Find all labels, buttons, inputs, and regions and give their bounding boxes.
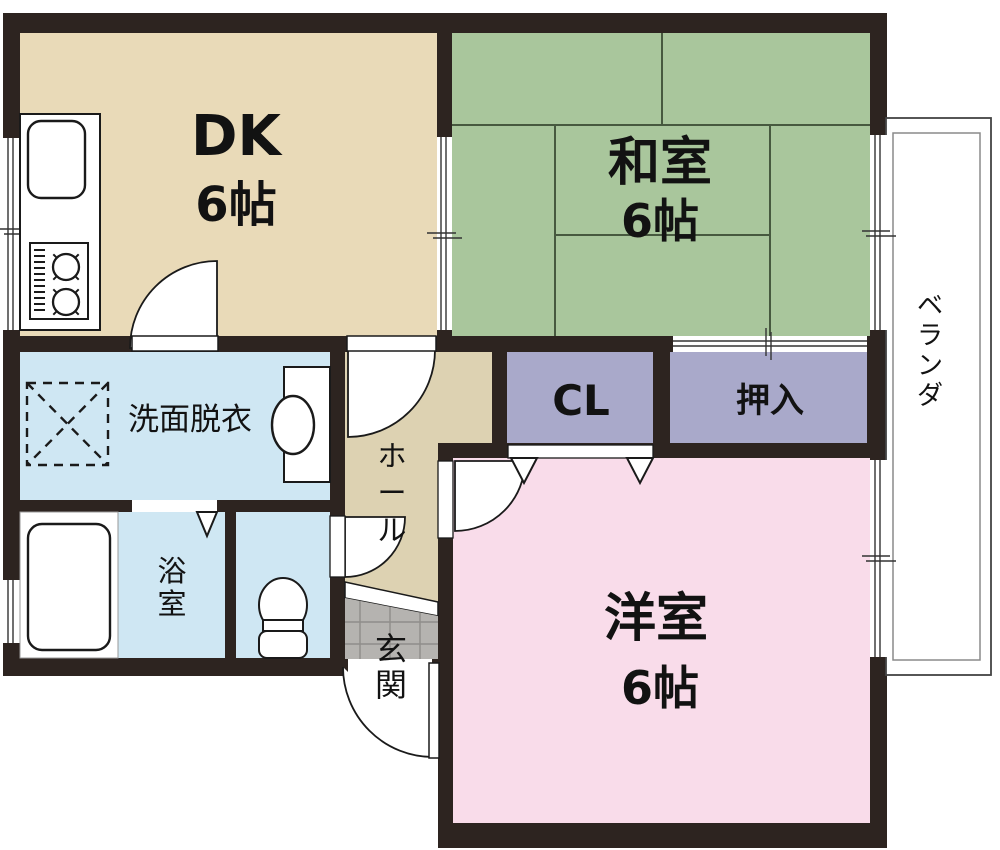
label-entrance: 玄関 [375,630,407,704]
label-veranda: ベランダ [917,291,943,411]
burner-bottom [53,289,79,315]
kitchen-sink [28,121,85,198]
label-dk-size: 6帖 [195,177,276,233]
label-japanese-room: 和室 [608,133,712,193]
bathtub [20,512,118,658]
label-bathroom: 浴室 [157,554,186,621]
label-hall: ホール [377,439,406,547]
kitchen-counter [20,114,100,330]
toilet [259,578,307,658]
label-western-room: 洋室 [604,589,708,649]
label-japanese-room-size: 6帖 [621,194,699,248]
floor-plan-canvas: DK 6帖 和室 6帖 洋室 6帖 CL 押入 洗面脱衣 浴室 ホール 玄関 ベ… [0,0,1000,850]
label-western-room-size: 6帖 [621,661,699,715]
label-closet: CL [552,376,610,425]
window-bathroom-west [3,580,20,643]
label-dk: DK [191,104,283,169]
label-washroom: 洗面脱衣 [128,402,252,438]
label-oshiire: 押入 [736,381,804,421]
burner-top [53,254,79,280]
gas-stove [30,243,88,319]
floor-plan: DK 6帖 和室 6帖 洋室 6帖 CL 押入 洗面脱衣 浴室 ホール 玄関 ベ… [0,0,1000,850]
